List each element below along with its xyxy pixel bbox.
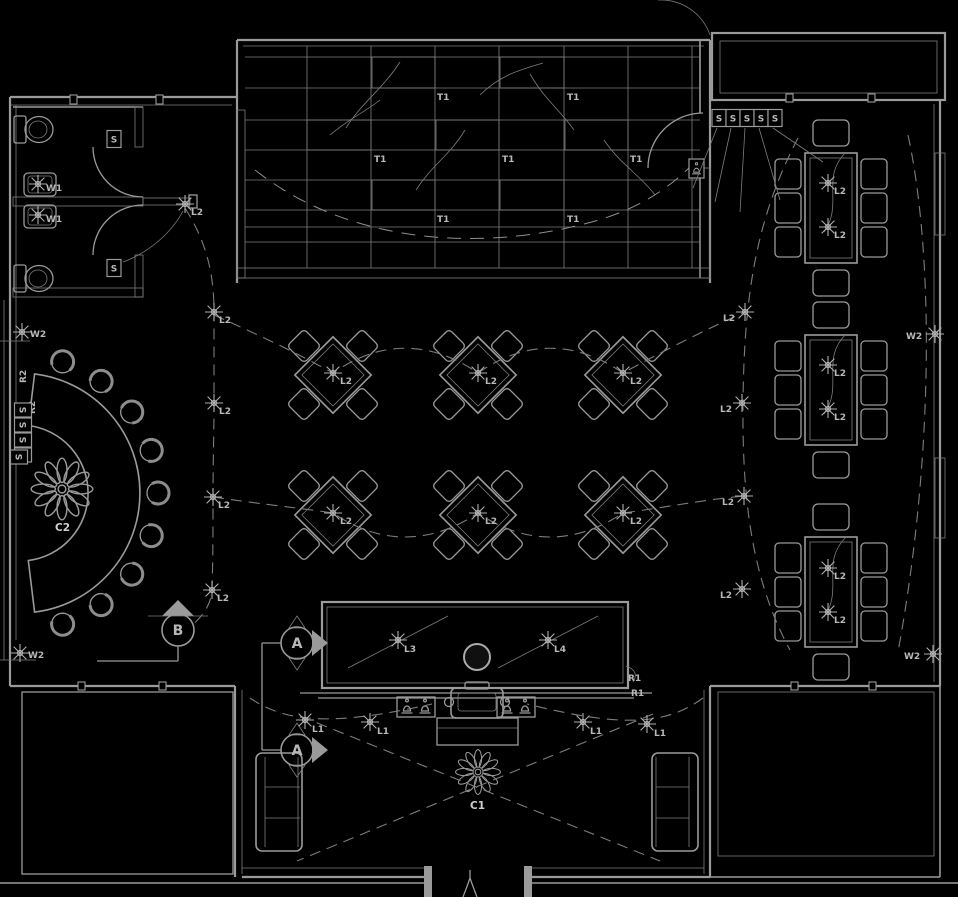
switch-label: S: [13, 454, 23, 460]
l2-fixture: [733, 394, 751, 412]
door-arc: [93, 147, 143, 197]
label-l2: L2: [191, 208, 203, 218]
entrance-post: [524, 866, 532, 897]
label-l2: L2: [834, 413, 846, 423]
bottom-right-room: [718, 692, 934, 856]
switch-label: S: [111, 265, 117, 275]
hatched-wall: [237, 268, 710, 278]
top-right-room: [712, 33, 945, 100]
switch-symbol: S: [11, 450, 28, 464]
label-l1: L1: [377, 727, 389, 737]
label-w2: W2: [30, 330, 46, 340]
switch-symbol: S: [15, 418, 32, 432]
w1-fixture: [29, 206, 47, 224]
label-l2: L2: [630, 517, 642, 527]
bathroom: [13, 107, 197, 297]
window-tick: [868, 94, 875, 102]
sofa: [652, 753, 698, 851]
sofa: [256, 753, 302, 851]
door-arc: [93, 205, 143, 255]
switch-label: S: [17, 437, 27, 443]
label-l2: L2: [485, 517, 497, 527]
w1-fixture: [29, 175, 47, 193]
entrance-arrow-icon: [463, 870, 477, 897]
window-tick: [786, 94, 793, 102]
section-marker-b: B: [148, 600, 208, 646]
label-t1: T1: [567, 93, 579, 103]
window-tick: [78, 682, 85, 690]
label-l2: L2: [720, 591, 732, 601]
label-l2: L2: [218, 501, 230, 511]
curved-banquette: [28, 348, 169, 638]
switch-symbol: S: [15, 403, 32, 417]
switch-symbol: S: [107, 131, 121, 148]
door-device: [689, 159, 704, 178]
label-l1: L1: [590, 727, 602, 737]
switch-label: S: [744, 115, 750, 125]
label-r1: R1: [631, 689, 644, 699]
label-l2: L2: [720, 405, 732, 415]
plant-c1: [456, 750, 501, 795]
l2-fixture: [736, 303, 754, 321]
entrance-post: [424, 866, 432, 897]
switch-symbol: S: [726, 110, 740, 127]
label-l1: L1: [312, 725, 324, 735]
w2-fixture: [926, 325, 944, 343]
label-l1: L1: [654, 729, 666, 739]
label-l2: L2: [340, 517, 352, 527]
bottom-left-room: [22, 692, 233, 874]
label-l3: L3: [404, 645, 416, 655]
label-l2: L2: [723, 314, 735, 324]
window-tick: [159, 682, 166, 690]
l2-fixture: [733, 580, 751, 598]
window-tick: [869, 682, 876, 690]
switch-label: S: [111, 136, 117, 146]
switch-symbol: S: [768, 110, 782, 127]
window-tick: [156, 95, 163, 104]
label-r1: R1: [628, 674, 641, 684]
bar-area: [300, 602, 652, 794]
w2-fixture: [13, 323, 31, 341]
label-l2: L2: [219, 407, 231, 417]
section-label-a: A: [292, 743, 303, 759]
label-w2: W2: [28, 651, 44, 661]
switch-label: S: [772, 115, 778, 125]
label-l2: L2: [834, 231, 846, 241]
label-w2: W2: [906, 332, 922, 342]
hatched-wall: [700, 168, 710, 278]
switch-symbol: S: [107, 260, 121, 277]
label-t1: T1: [437, 93, 449, 103]
label-w2: W2: [904, 652, 920, 662]
switch-symbol: S: [712, 110, 726, 127]
switch-symbol: S: [15, 433, 32, 447]
switch-label: S: [730, 115, 736, 125]
label-l2: L2: [834, 369, 846, 379]
label-t1: T1: [567, 215, 579, 225]
toilet: [14, 116, 53, 143]
exterior-walls: [0, 0, 958, 897]
label-l2: L2: [219, 316, 231, 326]
label-t1: T1: [630, 155, 642, 165]
w2-fixture: [11, 644, 29, 662]
label-w1: W1: [46, 184, 62, 194]
floor-plan-canvas: B A A W1W1L2L2L2L2L2L2L2L2L2L2L2L2L2L2L2…: [0, 0, 958, 897]
section-markers: B A A: [97, 600, 328, 777]
hatched-wall: [237, 110, 245, 278]
hatched-ceiling-tiles: [307, 57, 628, 210]
service-table: [437, 718, 518, 745]
label-l4: L4: [554, 645, 566, 655]
door-arc: [658, 0, 710, 35]
hatched-wall: [135, 255, 143, 297]
hatched-wall: [135, 107, 143, 147]
center-tables: [258, 300, 698, 590]
section-label-b: B: [173, 623, 184, 639]
section-label-a: A: [292, 636, 303, 652]
label-c1: C1: [470, 800, 485, 812]
window-tick: [70, 95, 77, 104]
label-l2: L2: [217, 594, 229, 604]
label-l2: L2: [630, 377, 642, 387]
label-t1: T1: [502, 155, 514, 165]
switch-label: S: [758, 115, 764, 125]
label-r2: R2: [19, 370, 29, 383]
label-l2: L2: [834, 187, 846, 197]
switch-symbol: S: [754, 110, 768, 127]
window-tick: [791, 682, 798, 690]
label-l2: L2: [834, 572, 846, 582]
label-l2: L2: [722, 498, 734, 508]
label-c2: C2: [55, 522, 70, 534]
label-w1: W1: [46, 215, 62, 225]
switch-label: S: [17, 407, 27, 413]
label-t1: T1: [437, 215, 449, 225]
label-l2: L2: [834, 616, 846, 626]
l2-fixture: [735, 487, 753, 505]
label-t1: T1: [374, 155, 386, 165]
fixtures-layer: W1W1L2L2L2L2L2L2L2L2L2L2L2L2L2L2L2L2L2L2…: [11, 93, 945, 812]
label-l2: L2: [485, 377, 497, 387]
switch-label: S: [17, 422, 27, 428]
bar-sink: [464, 644, 490, 670]
label-l2: L2: [340, 377, 352, 387]
floor-plan-stage: B A A W1W1L2L2L2L2L2L2L2L2L2L2L2L2L2L2L2…: [0, 0, 958, 897]
w2-fixture: [924, 645, 942, 663]
switch-label: S: [716, 115, 722, 125]
right-tables: [775, 120, 887, 680]
switch-symbol: S: [740, 110, 754, 127]
